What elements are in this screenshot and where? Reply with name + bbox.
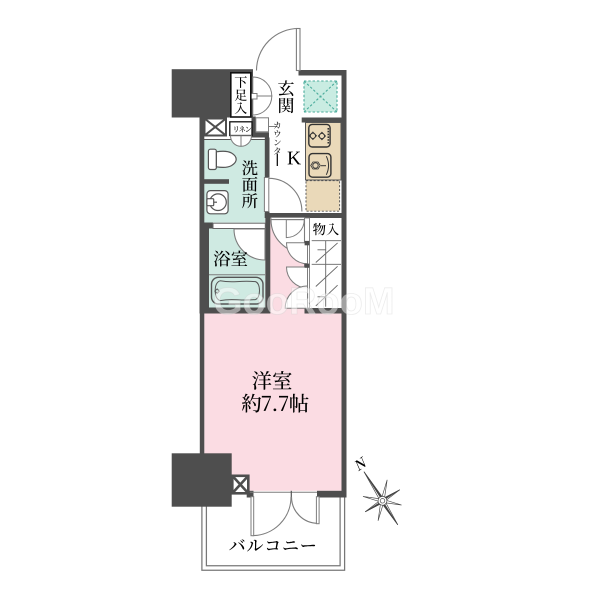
svg-text:GooRooM: GooRooM bbox=[213, 281, 395, 323]
